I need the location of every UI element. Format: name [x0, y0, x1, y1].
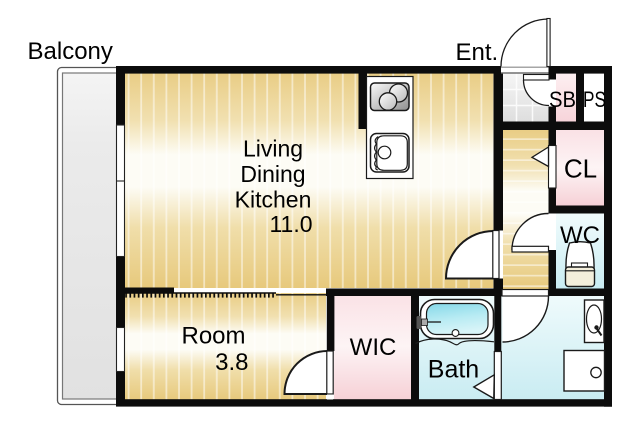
- svg-text:CL: CL: [564, 154, 597, 184]
- svg-text:SB: SB: [549, 87, 576, 112]
- svg-text:PS: PS: [583, 87, 606, 112]
- svg-text:WIC: WIC: [350, 334, 397, 361]
- svg-text:Room: Room: [181, 323, 245, 350]
- svg-text:Dining: Dining: [240, 161, 305, 187]
- svg-text:Ent.: Ent.: [456, 39, 499, 66]
- svg-text:Living: Living: [243, 136, 303, 162]
- svg-text:11.0: 11.0: [269, 211, 312, 237]
- svg-text:3.8: 3.8: [215, 349, 248, 376]
- svg-text:Balcony: Balcony: [28, 38, 113, 65]
- svg-text:WC: WC: [560, 222, 600, 249]
- svg-text:Kitchen: Kitchen: [235, 187, 312, 213]
- svg-text:Bath: Bath: [428, 356, 479, 384]
